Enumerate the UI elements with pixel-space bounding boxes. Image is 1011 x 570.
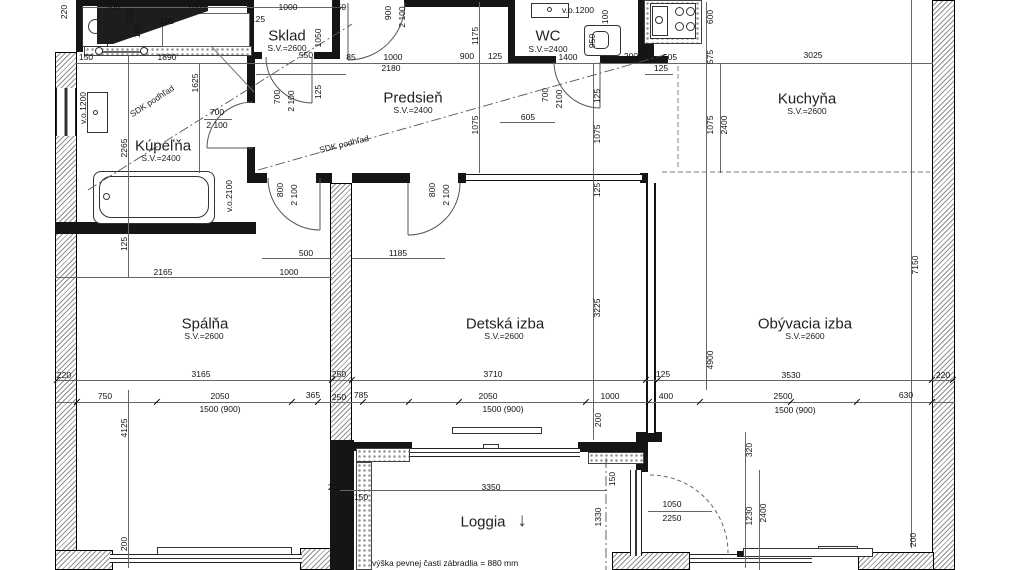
railing-note: výška pevnej časti zábradlia = 880 mm xyxy=(372,558,518,568)
towel-radiator-icon xyxy=(101,51,145,53)
dim-label: 530 xyxy=(126,8,135,22)
dim-label: 4125 xyxy=(120,419,129,438)
dim-label: 235 xyxy=(328,483,342,492)
dim-label: 630 xyxy=(899,391,913,400)
dim-label: 1000 xyxy=(384,53,403,62)
dim-label: 85 xyxy=(346,53,355,62)
insulation-band xyxy=(356,462,372,570)
dim-label: 200 xyxy=(624,52,638,61)
dim-label: 250 xyxy=(332,393,346,402)
dim-label: 2165 xyxy=(154,268,173,277)
dim-label: 2400 xyxy=(720,116,729,135)
ceiling-label: SDK podhľad xyxy=(128,83,176,119)
dim-label: 700 xyxy=(541,88,550,102)
exterior-wall-right xyxy=(932,0,955,570)
door-handle xyxy=(483,444,499,449)
dim-label: 505 xyxy=(663,53,677,62)
dim-label: 3225 xyxy=(593,299,602,318)
wall xyxy=(314,52,340,59)
room-height-detska-izba: S.V.=2600 xyxy=(484,331,523,341)
dim-label: 3025 xyxy=(804,51,823,60)
dim-label: 125 xyxy=(120,237,129,251)
dim-label: 125 xyxy=(251,15,265,24)
dim-label: 1400 xyxy=(559,53,578,62)
window-spalna xyxy=(110,554,302,563)
dim-label: 500 xyxy=(299,249,313,258)
bathroom-sink-drain-icon xyxy=(93,110,98,115)
window-loggia-sliding-door xyxy=(410,448,580,457)
dim-label: v.o.1200 xyxy=(562,6,594,15)
floor-plan: Kúpeľňa S.V.=2400 Sklad S.V.=2600 Predsi… xyxy=(0,0,1011,570)
wall xyxy=(404,0,509,7)
dim-label: 320 xyxy=(745,443,754,457)
dim-line xyxy=(55,277,332,278)
dim-line xyxy=(76,63,933,64)
dim-label: 125 xyxy=(593,89,602,103)
room-height-spalna: S.V.=2600 xyxy=(184,331,223,341)
dim-label: 1035 xyxy=(188,2,207,11)
dim-label: 605 xyxy=(521,113,535,122)
dim-label: 1075 xyxy=(706,116,715,135)
plan-lines-overlay xyxy=(0,0,1011,570)
dim-label: 150 xyxy=(608,472,617,486)
dim-label: 900 xyxy=(460,52,474,61)
dim-label: 250 xyxy=(332,370,346,379)
dim-label: 125 xyxy=(314,85,323,99)
dim-label: 2100 xyxy=(555,90,564,109)
room-label-spalna: Spálňa xyxy=(182,316,229,333)
wall xyxy=(316,173,332,183)
dim-line xyxy=(262,258,332,259)
dim-label: 2500 xyxy=(774,392,793,401)
dim-line xyxy=(500,122,555,123)
wall xyxy=(508,56,556,63)
dim-label: 600 xyxy=(706,10,715,24)
dim-label: 575 xyxy=(706,50,715,64)
dim-label: 2 100 xyxy=(398,6,407,27)
dim-label: v.o.1200 xyxy=(79,92,88,124)
dim-label: 220 xyxy=(60,5,69,19)
dim-label: 3350 xyxy=(482,483,501,492)
dim-label: 400 xyxy=(659,392,673,401)
wc-sink-drain-icon xyxy=(547,7,552,12)
dim-label: 2 100 xyxy=(290,184,299,205)
room-label-loggia: Loggia xyxy=(460,514,505,531)
radiator-obyvacia xyxy=(743,548,873,557)
room-height-kupelna: S.V.=2400 xyxy=(141,153,180,163)
wall xyxy=(636,432,662,442)
wall-detska-predsien xyxy=(466,174,642,181)
dim-label: 800 xyxy=(276,183,285,197)
dim-label: 150 xyxy=(79,53,93,62)
dim-label: 220 xyxy=(57,371,71,380)
radiator-spalna xyxy=(157,547,292,555)
dim-label: 2 100 xyxy=(442,184,451,205)
wall xyxy=(76,0,254,6)
wall xyxy=(247,59,255,103)
dim-label: 2050 xyxy=(479,392,498,401)
dim-label: 800 xyxy=(428,183,437,197)
dim-line xyxy=(352,258,445,259)
cooktop-burner-icon xyxy=(675,22,684,31)
dim-label: 2050 xyxy=(211,392,230,401)
dim-label: 125 xyxy=(593,183,602,197)
dim-label: 1500 (900) xyxy=(482,405,523,414)
wall-bottom-spalna-right xyxy=(300,548,332,570)
room-label-detska-izba: Detská izba xyxy=(466,316,544,333)
room-label-wc: WC xyxy=(536,28,561,45)
dim-label: 1500 (900) xyxy=(774,406,815,415)
radiator-detska xyxy=(452,427,542,434)
dim-label: 105 xyxy=(133,24,142,38)
dim-label: 2 100 xyxy=(287,90,296,111)
dim-label: 1050 xyxy=(314,29,323,48)
washing-machine-drum-icon xyxy=(88,19,103,34)
room-height-predsien: S.V.=2400 xyxy=(393,105,432,115)
ceiling-label: SDK podhľad xyxy=(318,133,370,155)
towel-radiator-end-icon xyxy=(140,47,148,55)
dim-label: 950 xyxy=(588,34,597,48)
room-label-sklad: Sklad xyxy=(268,28,306,45)
dim-label: 700 xyxy=(273,90,282,104)
dim-label: 3710 xyxy=(484,370,503,379)
radiator-valve-icon xyxy=(737,551,743,557)
glass-door-obyvacia-loggia xyxy=(630,470,642,556)
dim-label: 7150 xyxy=(911,256,920,275)
dim-label: 1050 xyxy=(663,500,682,509)
dim-label: 250 xyxy=(332,3,346,12)
room-label-obyvacia-izba: Obývacia izba xyxy=(758,316,852,333)
bathtub-drain-icon xyxy=(103,193,110,200)
dim-label: 2265 xyxy=(120,139,129,158)
room-label-kuchyna: Kuchyňa xyxy=(778,91,836,108)
dim-label: 220 xyxy=(936,371,950,380)
dim-label: 125 xyxy=(656,370,670,379)
dim-label: 2 100 xyxy=(206,121,227,130)
dim-label: 1230 xyxy=(745,507,754,526)
dim-label: 1185 xyxy=(389,249,407,258)
insulation-band xyxy=(356,448,410,462)
wall xyxy=(600,56,645,63)
dim-label: 700 xyxy=(210,108,224,117)
dim-line xyxy=(340,490,607,491)
wall-detska-obyvacia xyxy=(646,183,656,433)
bathtub-inner-icon xyxy=(99,176,209,218)
cooktop-burner-icon xyxy=(675,7,684,16)
room-height-kuchyna: S.V.=2600 xyxy=(787,106,826,116)
dim-label: 2250 xyxy=(663,514,682,523)
wall xyxy=(247,173,267,183)
dim-label: 1075 xyxy=(593,125,602,144)
cooktop-burner-icon xyxy=(686,7,695,16)
dim-line xyxy=(593,63,594,440)
dim-label: 3530 xyxy=(782,371,801,380)
towel-radiator-end-icon xyxy=(95,47,103,55)
dim-label: 1000 xyxy=(279,3,298,12)
dim-label: 1500 (900) xyxy=(199,405,240,414)
dim-label: 1075 xyxy=(471,116,480,135)
loggia-slope-arrow-icon: ↓ xyxy=(517,510,527,532)
wall-bottom-left-corner xyxy=(55,550,113,570)
dim-label: 150 xyxy=(354,493,368,502)
dim-label: 200 xyxy=(120,537,129,551)
window-kupelna xyxy=(56,88,76,136)
dim-label: 365 xyxy=(306,391,320,400)
dim-label: 900 xyxy=(106,2,120,11)
dim-label: 100 xyxy=(601,10,610,24)
dim-label: 2180 xyxy=(382,64,401,73)
dim-label: 785 xyxy=(354,391,368,400)
insulation-band xyxy=(588,452,644,464)
dim-label: 105 xyxy=(160,17,174,26)
dim-label: 3165 xyxy=(192,370,211,379)
dim-label: 1000 xyxy=(280,268,299,277)
storage-cabinet xyxy=(162,13,250,47)
dim-label: 1175 xyxy=(471,27,480,45)
room-label-predsien: Predsieň xyxy=(383,90,442,107)
dim-label: 4900 xyxy=(706,351,715,370)
wall xyxy=(508,0,515,63)
wall xyxy=(352,173,410,183)
dim-label: 200 xyxy=(909,533,918,547)
wall-loggia-left xyxy=(330,440,354,570)
dim-label: 900 xyxy=(384,6,393,20)
room-height-obyvacia-izba: S.V.=2600 xyxy=(785,331,824,341)
dim-label: 1625 xyxy=(191,74,200,93)
dim-label: 125 xyxy=(488,52,502,61)
dim-label: 1890 xyxy=(158,53,177,62)
kitchen-sink-drain-icon xyxy=(655,16,663,24)
dim-line xyxy=(256,74,346,75)
dim-label: 2400 xyxy=(759,504,768,523)
dim-line xyxy=(55,380,955,381)
wall-bottom-obyvacia-left xyxy=(612,552,690,570)
dim-label: 1000 xyxy=(601,392,620,401)
dim-label: 125 xyxy=(654,64,668,73)
cooktop-burner-icon xyxy=(686,22,695,31)
dim-label: 750 xyxy=(98,392,112,401)
dim-label: 1330 xyxy=(594,508,603,527)
dim-line xyxy=(82,7,345,8)
room-label-kupelna: Kúpeľňa xyxy=(135,138,191,155)
dim-label: 200 xyxy=(594,413,603,427)
wall xyxy=(458,173,466,183)
dim-line xyxy=(645,74,673,75)
dim-label: v.o.2100 xyxy=(225,180,234,212)
dim-label: 550 xyxy=(299,51,313,60)
